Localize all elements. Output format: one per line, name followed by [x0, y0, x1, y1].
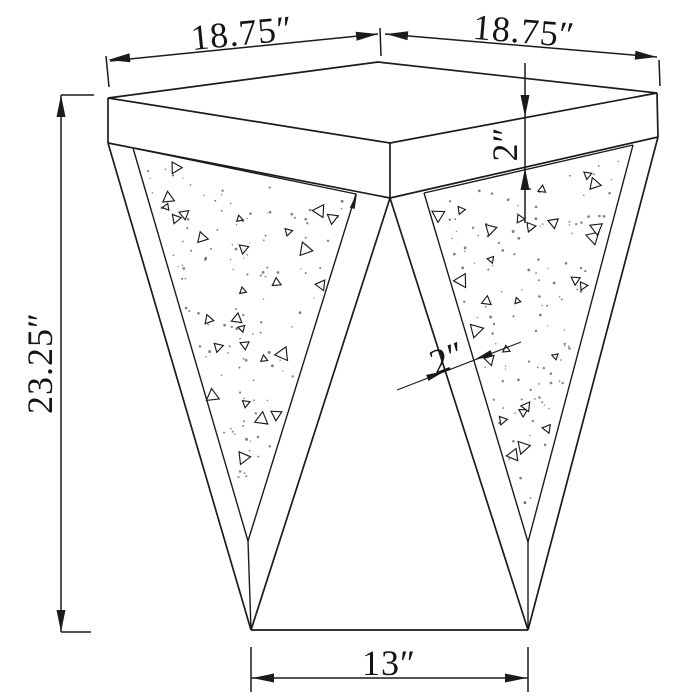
speckle-dot	[210, 248, 212, 250]
speckle-dot	[550, 382, 553, 385]
speckle-triangle	[487, 257, 494, 264]
speckle-dot	[152, 192, 154, 194]
speckle-dot	[539, 314, 542, 317]
speckle-dot	[249, 242, 250, 243]
speckle-dot	[235, 248, 238, 251]
speckle-dot	[478, 190, 481, 193]
speckle-dot	[238, 476, 240, 478]
speckle-dot	[553, 282, 556, 285]
speckle-dot	[243, 420, 245, 422]
speckle-triangle	[239, 245, 248, 254]
table-top-surface	[108, 62, 657, 143]
speckle-dot	[239, 338, 241, 340]
right-panel-inner-right-edge	[528, 145, 633, 542]
speckle-dot	[263, 299, 264, 300]
arrowhead-icon	[386, 31, 408, 40]
speckle-dot	[230, 259, 231, 260]
speckle-dot	[186, 227, 188, 229]
leader-arrow-icon	[350, 193, 357, 209]
speckle-dot	[309, 209, 312, 212]
speckle-dot	[187, 218, 190, 221]
speckle-triangle	[231, 313, 241, 323]
speckle-dot	[535, 330, 537, 332]
speckle-dot	[538, 295, 541, 298]
speckle-triangle	[240, 342, 249, 350]
speckle-triangle	[327, 214, 338, 224]
speckle-dot	[477, 317, 478, 318]
arrowhead-icon	[252, 674, 274, 683]
speckle-dot	[502, 380, 504, 382]
speckle-dot	[583, 194, 585, 196]
speckle-dot	[305, 237, 307, 239]
speckle-dot	[182, 177, 183, 178]
speckle-triangle	[214, 343, 223, 352]
speckle-dot	[449, 200, 451, 202]
left-panel-inner-left-edge	[133, 148, 248, 541]
speckle-dot	[534, 398, 536, 400]
table-structure	[108, 62, 658, 630]
speckle-triangle	[172, 214, 181, 223]
speckle-dot	[569, 224, 570, 225]
speckle-dot	[547, 325, 548, 326]
speckle-dot	[527, 268, 530, 271]
speckle-dot	[461, 267, 464, 270]
speckle-dot	[505, 365, 506, 366]
speckle-dot	[474, 263, 475, 264]
speckle-triangle	[261, 355, 268, 362]
speckle-dot	[327, 240, 329, 242]
diagram-canvas: 18.75″ 18.75″ 23.25″ 2″ 2″ 13″	[0, 0, 700, 700]
speckle-dot	[243, 257, 244, 258]
extension-line	[659, 60, 660, 86]
speckle-dot	[538, 396, 541, 399]
speckle-dot	[190, 250, 192, 252]
dimension-base-width-label: 13″	[362, 643, 416, 683]
speckle-dot	[185, 278, 187, 280]
arrowhead-icon	[635, 51, 657, 60]
speckle-dot	[239, 470, 241, 472]
speckle-dot	[593, 173, 595, 175]
speckle-dot	[535, 272, 537, 274]
speckle-dot	[214, 200, 216, 202]
speckle-dot	[495, 343, 496, 344]
speckle-texture-left	[147, 162, 343, 478]
speckle-dot	[267, 400, 269, 402]
arrowhead-icon	[57, 95, 66, 117]
speckle-dot	[245, 438, 248, 441]
speckle-dot	[244, 472, 246, 474]
speckle-dot	[485, 306, 487, 308]
speckle-triangle	[517, 214, 525, 223]
speckle-dot	[493, 399, 495, 401]
speckle-dot	[568, 346, 570, 348]
speckle-dot	[182, 267, 185, 270]
speckle-dot	[239, 391, 241, 393]
speckle-dot	[249, 212, 252, 215]
speckle-dot	[564, 343, 566, 345]
speckle-dot	[491, 192, 494, 195]
speckle-dot	[230, 203, 232, 205]
speckle-dot	[306, 222, 308, 224]
speckle-dot	[477, 235, 479, 237]
speckle-dot	[221, 190, 223, 192]
speckle-dot	[232, 244, 234, 246]
speckle-dot	[449, 218, 451, 220]
speckle-dot	[231, 326, 233, 328]
speckle-triangle	[198, 232, 209, 243]
dimension-top-left: 18.75″	[106, 8, 381, 87]
speckle-dot	[464, 246, 467, 249]
speckle-dot	[598, 215, 601, 218]
speckle-dot	[538, 383, 540, 385]
speckle-dot	[260, 274, 262, 276]
speckle-dot	[562, 382, 564, 384]
speckle-dot	[260, 321, 262, 323]
speckle-triangle	[312, 205, 323, 218]
speckle-dot	[221, 374, 222, 375]
speckle-dot	[182, 241, 184, 243]
speckle-dot	[235, 308, 237, 310]
speckle-dot	[507, 198, 510, 201]
speckle-dot	[598, 165, 600, 167]
speckle-triangle	[499, 416, 507, 425]
speckle-dot	[246, 254, 248, 256]
speckle-dot	[541, 401, 543, 403]
speckle-triangle	[240, 287, 247, 294]
speckle-triangle	[470, 325, 483, 338]
speckle-dot	[489, 316, 492, 319]
speckle-dot	[560, 359, 562, 361]
speckle-dot	[252, 333, 254, 335]
speckle-dot	[521, 398, 523, 400]
speckle-triangle	[315, 280, 325, 291]
speckle-triangle	[238, 325, 245, 332]
speckle-dot	[618, 161, 619, 162]
speckle-dot	[313, 297, 314, 298]
speckle-triangle	[590, 178, 601, 190]
speckle-dot	[223, 432, 225, 434]
speckle-triangle	[432, 211, 445, 222]
speckle-dot	[236, 224, 238, 226]
speckle-dot	[242, 314, 244, 316]
speckle-dot	[568, 347, 570, 349]
speckle-dot	[472, 227, 474, 229]
speckle-dot	[559, 380, 561, 382]
speckle-dot	[243, 358, 245, 360]
speckle-dot	[232, 431, 234, 433]
left-leg-panel	[108, 143, 390, 630]
speckle-dot	[246, 218, 247, 219]
speckle-dot	[341, 208, 343, 210]
speckle-dot	[512, 440, 515, 443]
speckle-dot	[542, 223, 544, 225]
speckle-triangle	[237, 215, 243, 221]
speckle-dot	[608, 192, 611, 195]
speckle-dot	[205, 257, 207, 259]
speckle-triangle	[482, 296, 492, 305]
speckle-dot	[172, 174, 174, 176]
speckle-triangle	[571, 277, 580, 285]
speckle-dot	[487, 269, 489, 271]
speckle-dot	[319, 267, 321, 269]
speckle-dot	[538, 279, 540, 281]
speckle-dot	[559, 296, 561, 298]
speckle-triangle	[272, 278, 281, 286]
speckle-dot	[611, 179, 612, 180]
speckle-dot	[535, 206, 538, 209]
speckle-dot	[221, 210, 223, 212]
speckle-dot	[255, 412, 257, 414]
extension-line	[106, 56, 109, 87]
speckle-dot	[505, 368, 506, 369]
speckle-dot	[181, 278, 183, 280]
speckle-dot	[300, 268, 301, 269]
speckle-dot	[267, 212, 268, 213]
speckle-dot	[587, 215, 590, 218]
speckle-dot	[517, 237, 520, 240]
furniture-dimension-diagram: 18.75″ 18.75″ 23.25″ 2″ 2″ 13″	[0, 0, 700, 700]
speckle-dot	[269, 211, 272, 214]
speckle-dot	[521, 289, 522, 290]
speckle-dot	[530, 389, 532, 391]
speckle-dot	[242, 425, 244, 427]
speckle-dot	[463, 301, 465, 303]
speckle-dot	[199, 345, 202, 348]
speckle-dot	[544, 444, 547, 447]
apron-edge-right	[657, 93, 658, 137]
speckle-triangle	[515, 298, 521, 304]
speckle-triangle	[518, 442, 530, 455]
dimension-height-label: 23.25″	[20, 312, 60, 414]
speckle-dot	[227, 352, 229, 354]
speckle-dot	[603, 215, 606, 218]
speckle-dot	[257, 456, 259, 458]
dimension-overall-height: 23.25″	[20, 95, 94, 632]
right-panel-outer-left-edge	[390, 198, 528, 630]
speckle-dot	[263, 239, 265, 241]
speckle-dot	[246, 273, 248, 275]
speckle-dot	[243, 398, 245, 400]
speckle-dot	[230, 428, 232, 430]
dimension-top-right: 18.75″	[385, 7, 660, 86]
speckle-dot	[282, 370, 283, 371]
speckle-dot	[493, 323, 495, 325]
speckle-dot	[277, 271, 280, 274]
speckle-dot	[292, 375, 294, 377]
left-panel-outer-left-edge	[108, 143, 251, 630]
speckle-triangle	[243, 401, 251, 408]
speckle-dot	[265, 235, 267, 237]
speckle-dot	[197, 312, 200, 315]
speckle-dot	[580, 267, 582, 269]
speckle-triangle	[454, 274, 466, 288]
arrowhead-icon	[521, 95, 530, 117]
speckle-triangle	[580, 282, 588, 290]
speckle-dot	[294, 217, 296, 219]
speckle-dot	[523, 501, 526, 504]
speckle-dot	[539, 226, 540, 227]
speckle-dot	[268, 351, 271, 354]
speckle-dot	[290, 213, 293, 216]
speckle-dot	[245, 475, 247, 477]
speckle-dot	[233, 269, 234, 270]
speckle-dot	[568, 221, 570, 223]
speckle-dot	[464, 251, 466, 253]
speckle-triangle	[458, 207, 465, 215]
speckle-dot	[249, 450, 251, 452]
speckle-triangle	[486, 225, 497, 236]
arrowhead-icon	[356, 32, 378, 41]
speckle-dot	[565, 262, 568, 265]
dimension-top-thickness-label: 2″	[485, 127, 525, 162]
speckle-dot	[532, 420, 534, 422]
speckle-dot	[188, 310, 190, 312]
speckle-dot	[517, 205, 518, 206]
speckle-dot	[245, 359, 248, 362]
speckle-triangle	[506, 449, 517, 461]
speckle-triangle	[548, 219, 558, 229]
speckle-dot	[253, 399, 255, 401]
speckle-dot	[341, 200, 344, 203]
speckle-triangle	[285, 229, 292, 236]
speckle-dot	[491, 332, 494, 335]
speckle-dot	[541, 305, 543, 307]
speckle-dot	[150, 178, 151, 179]
speckle-dot	[208, 350, 211, 353]
speckle-dot	[513, 253, 515, 255]
speckle-dot	[529, 435, 530, 436]
speckle-dot	[279, 359, 281, 361]
speckle-dot	[451, 238, 452, 239]
speckle-triangle	[542, 425, 550, 434]
speckle-dot	[257, 436, 260, 439]
speckle-triangle	[271, 411, 282, 421]
speckle-dot	[221, 194, 222, 195]
speckle-triangle	[519, 410, 528, 417]
speckle-dot	[519, 477, 522, 480]
speckle-dot	[528, 360, 530, 362]
speckle-dot	[165, 168, 167, 170]
arrowhead-icon	[505, 674, 527, 683]
speckle-dot	[456, 231, 457, 232]
speckle-dot	[266, 267, 268, 269]
speckle-dot	[571, 233, 573, 235]
speckle-dot	[530, 497, 532, 499]
speckle-triangle	[584, 172, 592, 179]
speckle-dot	[203, 194, 205, 196]
speckle-dot	[453, 253, 456, 256]
speckle-dot	[185, 307, 188, 310]
speckle-dot	[234, 434, 235, 435]
speckle-dot	[223, 324, 226, 327]
speckle-dot	[205, 356, 207, 358]
dimension-base-width: 13″	[251, 643, 528, 692]
speckle-triangle	[527, 223, 536, 233]
speckle-dot	[304, 218, 307, 221]
speckle-dot	[216, 229, 218, 231]
speckle-triangle	[275, 347, 288, 361]
speckle-dot	[207, 324, 209, 326]
arrowhead-icon	[57, 610, 66, 632]
speckle-dot	[268, 445, 270, 447]
speckle-dot	[305, 272, 307, 274]
speckle-dot	[250, 441, 251, 442]
right-leg-panel	[390, 137, 658, 630]
speckle-triangle	[552, 354, 558, 360]
speckle-dot	[264, 276, 266, 278]
speckle-dot	[291, 326, 293, 328]
speckle-dot	[543, 367, 545, 369]
speckle-triangle	[300, 242, 313, 255]
speckle-dot	[580, 221, 582, 223]
speckle-dot	[508, 458, 510, 460]
speckle-dot	[537, 367, 539, 369]
speckle-dot	[514, 412, 516, 414]
speckle-dot	[575, 223, 577, 225]
speckle-dot	[512, 230, 515, 233]
speckle-dot	[547, 268, 548, 269]
speckle-dot	[501, 249, 504, 252]
speckle-dot	[229, 345, 231, 347]
speckle-dot	[548, 408, 550, 410]
speckle-dot	[502, 407, 504, 409]
left-panel-inner-top-edge	[133, 148, 356, 194]
speckle-dot	[517, 379, 520, 382]
speckle-dot	[498, 242, 500, 244]
speckle-dot	[260, 332, 262, 334]
speckle-dot	[564, 329, 565, 330]
dimension-top-right-label: 18.75″	[472, 7, 577, 55]
speckle-dot	[182, 265, 184, 267]
speckle-dot	[147, 170, 149, 172]
speckle-dot	[485, 367, 487, 369]
speckle-dot	[178, 266, 179, 267]
speckle-dot	[584, 270, 586, 272]
center-tick	[380, 28, 381, 56]
speckle-triangle	[163, 191, 175, 202]
speckle-dot	[454, 218, 456, 220]
speckle-dot	[269, 187, 271, 189]
speckle-dot	[173, 254, 175, 256]
speckle-dot	[564, 345, 565, 346]
speckle-dot	[561, 299, 563, 301]
speckle-dot	[576, 289, 578, 291]
speckle-dot	[534, 217, 537, 220]
arrowhead-icon	[521, 168, 530, 190]
speckle-triangle	[206, 389, 219, 401]
speckle-dot	[544, 405, 545, 406]
speckle-triangle	[239, 452, 251, 465]
speckle-triangle	[205, 315, 214, 324]
speckle-dot	[299, 312, 302, 315]
left-panel-seam	[248, 541, 251, 630]
speckle-dot	[550, 372, 553, 375]
speckle-triangle	[538, 185, 546, 192]
speckle-dot	[271, 364, 274, 367]
speckle-dot	[546, 305, 548, 307]
speckle-dot	[537, 258, 540, 261]
speckle-dot	[190, 184, 192, 186]
speckle-dot	[238, 367, 240, 369]
speckle-dot	[512, 315, 514, 317]
speckle-triangle	[162, 203, 168, 210]
speckle-dot	[569, 175, 571, 177]
speckle-dot	[253, 379, 255, 381]
speckle-dot	[492, 265, 493, 266]
speckle-dot	[501, 291, 503, 293]
right-panel-outer-right-edge	[528, 137, 658, 630]
speckle-triangle	[172, 162, 182, 174]
